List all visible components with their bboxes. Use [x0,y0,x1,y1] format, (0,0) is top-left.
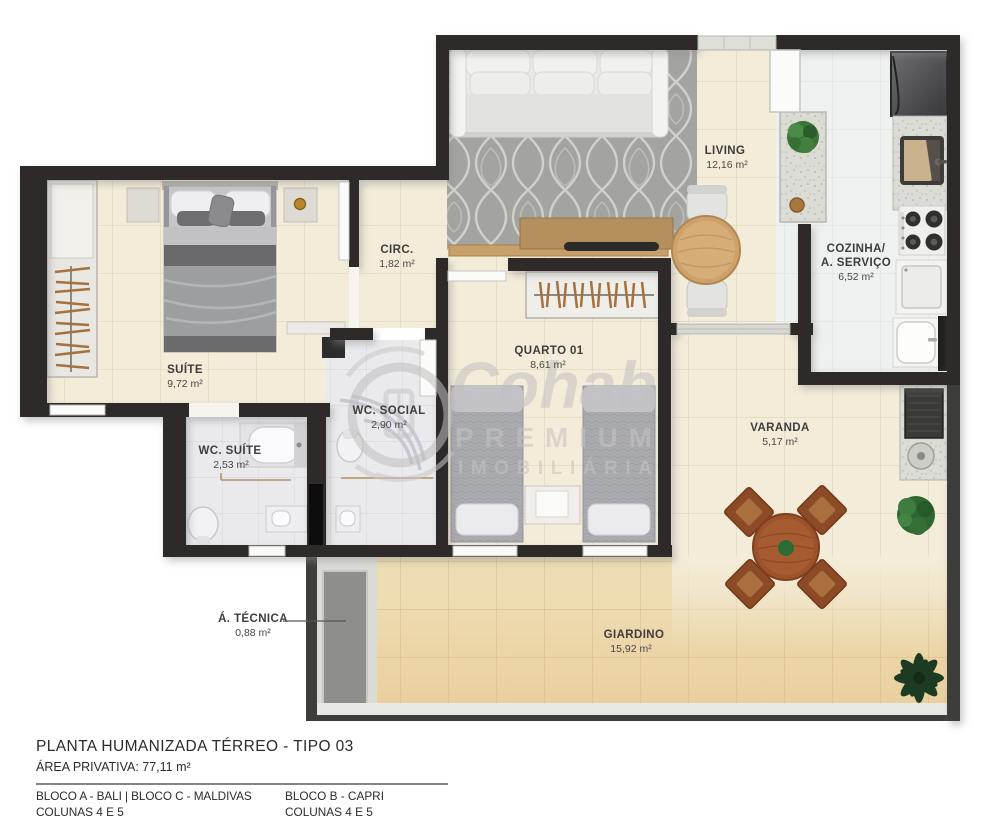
svg-text:5,17 m²: 5,17 m² [762,436,798,448]
svg-text:ÁREA PRIVATIVA: 77,11 m²: ÁREA PRIVATIVA: 77,11 m² [36,759,191,774]
svg-text:BLOCO A - BALI | BLOCO C - M: BLOCO A - BALI | BLOCO C - MALDIVAS [36,789,252,803]
svg-text:15,92 m²: 15,92 m² [610,643,652,655]
svg-text:2,53 m²: 2,53 m² [213,459,249,471]
svg-text:8,61 m²: 8,61 m² [530,359,566,371]
svg-text:BLOCO B - CAPRI: BLOCO B - CAPRI [285,789,384,803]
svg-text:GIARDINO: GIARDINO [604,629,665,641]
svg-text:6,52 m²: 6,52 m² [838,271,874,283]
svg-text:WC. SUÍTE: WC. SUÍTE [198,444,261,457]
svg-text:A. SERVIÇO: A. SERVIÇO [821,257,891,269]
svg-text:PLANTA HUMANIZADA TÉRREO - TIP: PLANTA HUMANIZADA TÉRREO - TIPO 03 [36,738,354,755]
svg-text:Á. TÉCNICA: Á. TÉCNICA [218,612,288,625]
svg-text:12,16 m²: 12,16 m² [706,159,748,171]
svg-text:LIVING: LIVING [705,145,746,157]
svg-text:QUARTO 01: QUARTO 01 [514,345,583,357]
svg-text:VARANDA: VARANDA [750,422,809,434]
svg-text:SUÍTE: SUÍTE [167,363,203,376]
svg-text:9,72 m²: 9,72 m² [167,378,203,390]
svg-text:2,90 m²: 2,90 m² [371,419,407,431]
svg-text:CIRC.: CIRC. [380,244,413,256]
svg-text:COLUNAS 4 E 5: COLUNAS 4 E 5 [36,805,124,819]
svg-text:0,88 m²: 0,88 m² [235,627,271,639]
svg-text:WC. SOCIAL: WC. SOCIAL [353,405,426,417]
svg-text:COZINHA/: COZINHA/ [827,243,886,255]
svg-text:1,82 m²: 1,82 m² [379,258,415,270]
svg-text:COLUNAS 4 E 5: COLUNAS 4 E 5 [285,805,373,819]
